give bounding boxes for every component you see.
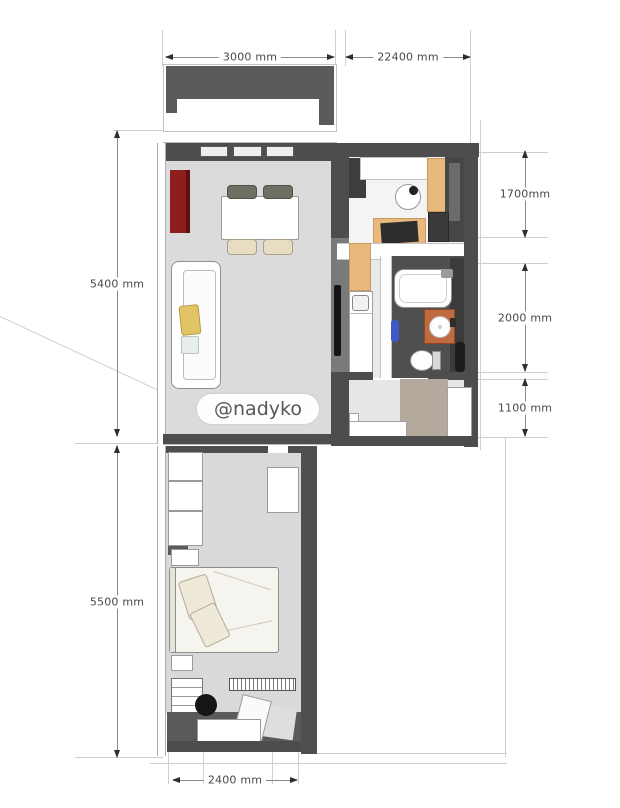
arrow-up-icon	[522, 378, 528, 386]
guide-line	[478, 152, 548, 153]
bedroom-right-wall	[301, 446, 317, 754]
arrow-up-icon	[522, 263, 528, 271]
bedroom-bottom-wall	[167, 741, 301, 752]
dining-table	[221, 196, 299, 240]
dimension-left-lower: 5500 mm	[111, 446, 123, 757]
arrow-right-icon	[327, 54, 335, 60]
guide-line	[480, 120, 481, 450]
sofa-cushion	[181, 336, 199, 354]
dimension-label: 5400 mm	[86, 277, 148, 290]
hallway-bottom-wall	[343, 436, 478, 446]
washing-machine-door	[352, 295, 369, 311]
bedroom-cabinet	[267, 467, 299, 513]
watermark-badge: @nadyko	[197, 394, 319, 424]
arrow-up-icon	[114, 445, 120, 453]
dimension-right-upper: 1700mm	[519, 151, 531, 237]
dimension-label: 2400 mm	[204, 774, 266, 787]
bathtub-inner	[399, 274, 447, 303]
hallway-rug	[400, 379, 448, 439]
dimension-label: 1100 mm	[494, 401, 556, 414]
desk	[197, 719, 261, 743]
hallway-bench	[349, 421, 407, 437]
window-pane	[200, 146, 228, 157]
corridor-cabinet	[349, 243, 371, 291]
arrow-right-icon	[290, 777, 298, 783]
balcony-railing-top	[166, 66, 334, 99]
bathroom-bottom-wall-left	[349, 372, 373, 380]
dining-chair	[263, 185, 293, 199]
dimension-left-upper: 5400 mm	[111, 131, 123, 436]
arrow-left-icon	[345, 54, 353, 60]
living-room-left-wall	[157, 143, 166, 444]
red-cabinet	[170, 170, 190, 233]
guide-line	[505, 437, 506, 757]
appliance-divider	[349, 313, 373, 314]
bed-headboard	[170, 568, 176, 652]
wardrobe-section	[168, 481, 203, 511]
guide-line	[478, 372, 548, 373]
wardrobe-section	[168, 511, 203, 546]
nightstand	[171, 655, 193, 671]
arrow-left-icon	[172, 777, 180, 783]
toilet-tank	[432, 351, 441, 370]
arrow-down-icon	[522, 230, 528, 238]
dimension-right-middle: 2000 mm	[519, 264, 531, 371]
dimension-label: 2000 mm	[494, 311, 556, 324]
guide-line	[335, 30, 336, 66]
sofa-pillow-yellow	[178, 304, 201, 336]
dimension-label: 5500 mm	[86, 595, 148, 608]
dining-chair	[227, 239, 257, 255]
dimension-bottom: 2400 mm	[173, 774, 297, 786]
kitchen-top-wall	[337, 143, 479, 157]
dimension-label: 1700mm	[496, 188, 555, 201]
guide-line	[75, 443, 161, 444]
partition-wall-upper	[331, 143, 349, 238]
arrow-down-icon	[522, 429, 528, 437]
wall-tv	[334, 285, 341, 356]
arrow-up-icon	[114, 130, 120, 138]
arrow-down-icon	[522, 364, 528, 372]
guide-line	[470, 30, 471, 144]
guide-line	[478, 237, 548, 238]
dimension-label: 22400 mm	[373, 51, 443, 64]
dimension-right-lower: 1100 mm	[519, 379, 531, 436]
living-room-bottom-wall	[163, 434, 333, 444]
bedroom-left-wall	[157, 446, 166, 756]
dining-chair	[227, 185, 257, 199]
bathtub-faucet	[441, 269, 453, 278]
blanket-fold	[213, 571, 270, 590]
guide-line	[478, 437, 548, 438]
nightstand	[171, 549, 199, 566]
hallway-closet	[447, 387, 472, 437]
dimension-top-left: 3000 mm	[166, 51, 334, 63]
radiator	[229, 678, 296, 691]
kitchen-fridge-front	[449, 163, 460, 221]
toilet-bowl	[410, 350, 434, 371]
balcony-railing-left	[166, 99, 177, 113]
guide-line	[162, 30, 163, 66]
balcony-railing-right	[319, 99, 334, 125]
arrow-up-icon	[522, 150, 528, 158]
dining-chair	[263, 239, 293, 255]
wardrobe-section	[168, 452, 203, 481]
arrow-down-icon	[114, 429, 120, 437]
window-pane	[233, 146, 262, 157]
guide-line	[303, 753, 507, 754]
kitchen-oven	[428, 212, 449, 242]
guide-line	[478, 263, 548, 264]
kitchen-countertop	[360, 157, 428, 180]
kitchen-cooktop	[380, 221, 418, 245]
bathroom-fixture-dark	[455, 342, 465, 372]
partition-wall-lower	[331, 372, 349, 446]
watermark-text: @nadyko	[214, 398, 302, 420]
washbasin-drain	[438, 325, 442, 329]
window-pane	[266, 146, 294, 157]
guide-line-diagonal	[0, 316, 172, 397]
dimension-top-right: 22400 mm	[346, 51, 470, 63]
floor-plan-canvas: @nadyko 3000 mm 22400 mm 1700mm 2000 mm …	[0, 0, 620, 808]
arrow-left-icon	[165, 54, 173, 60]
arrow-down-icon	[114, 750, 120, 758]
washbasin-faucet	[450, 318, 456, 327]
towel-rail-blue	[391, 320, 399, 342]
bathroom-left-wall	[380, 256, 392, 378]
arrow-right-icon	[463, 54, 471, 60]
dimension-label: 3000 mm	[219, 51, 281, 64]
guide-line	[478, 379, 548, 380]
desk-chair	[195, 694, 217, 716]
